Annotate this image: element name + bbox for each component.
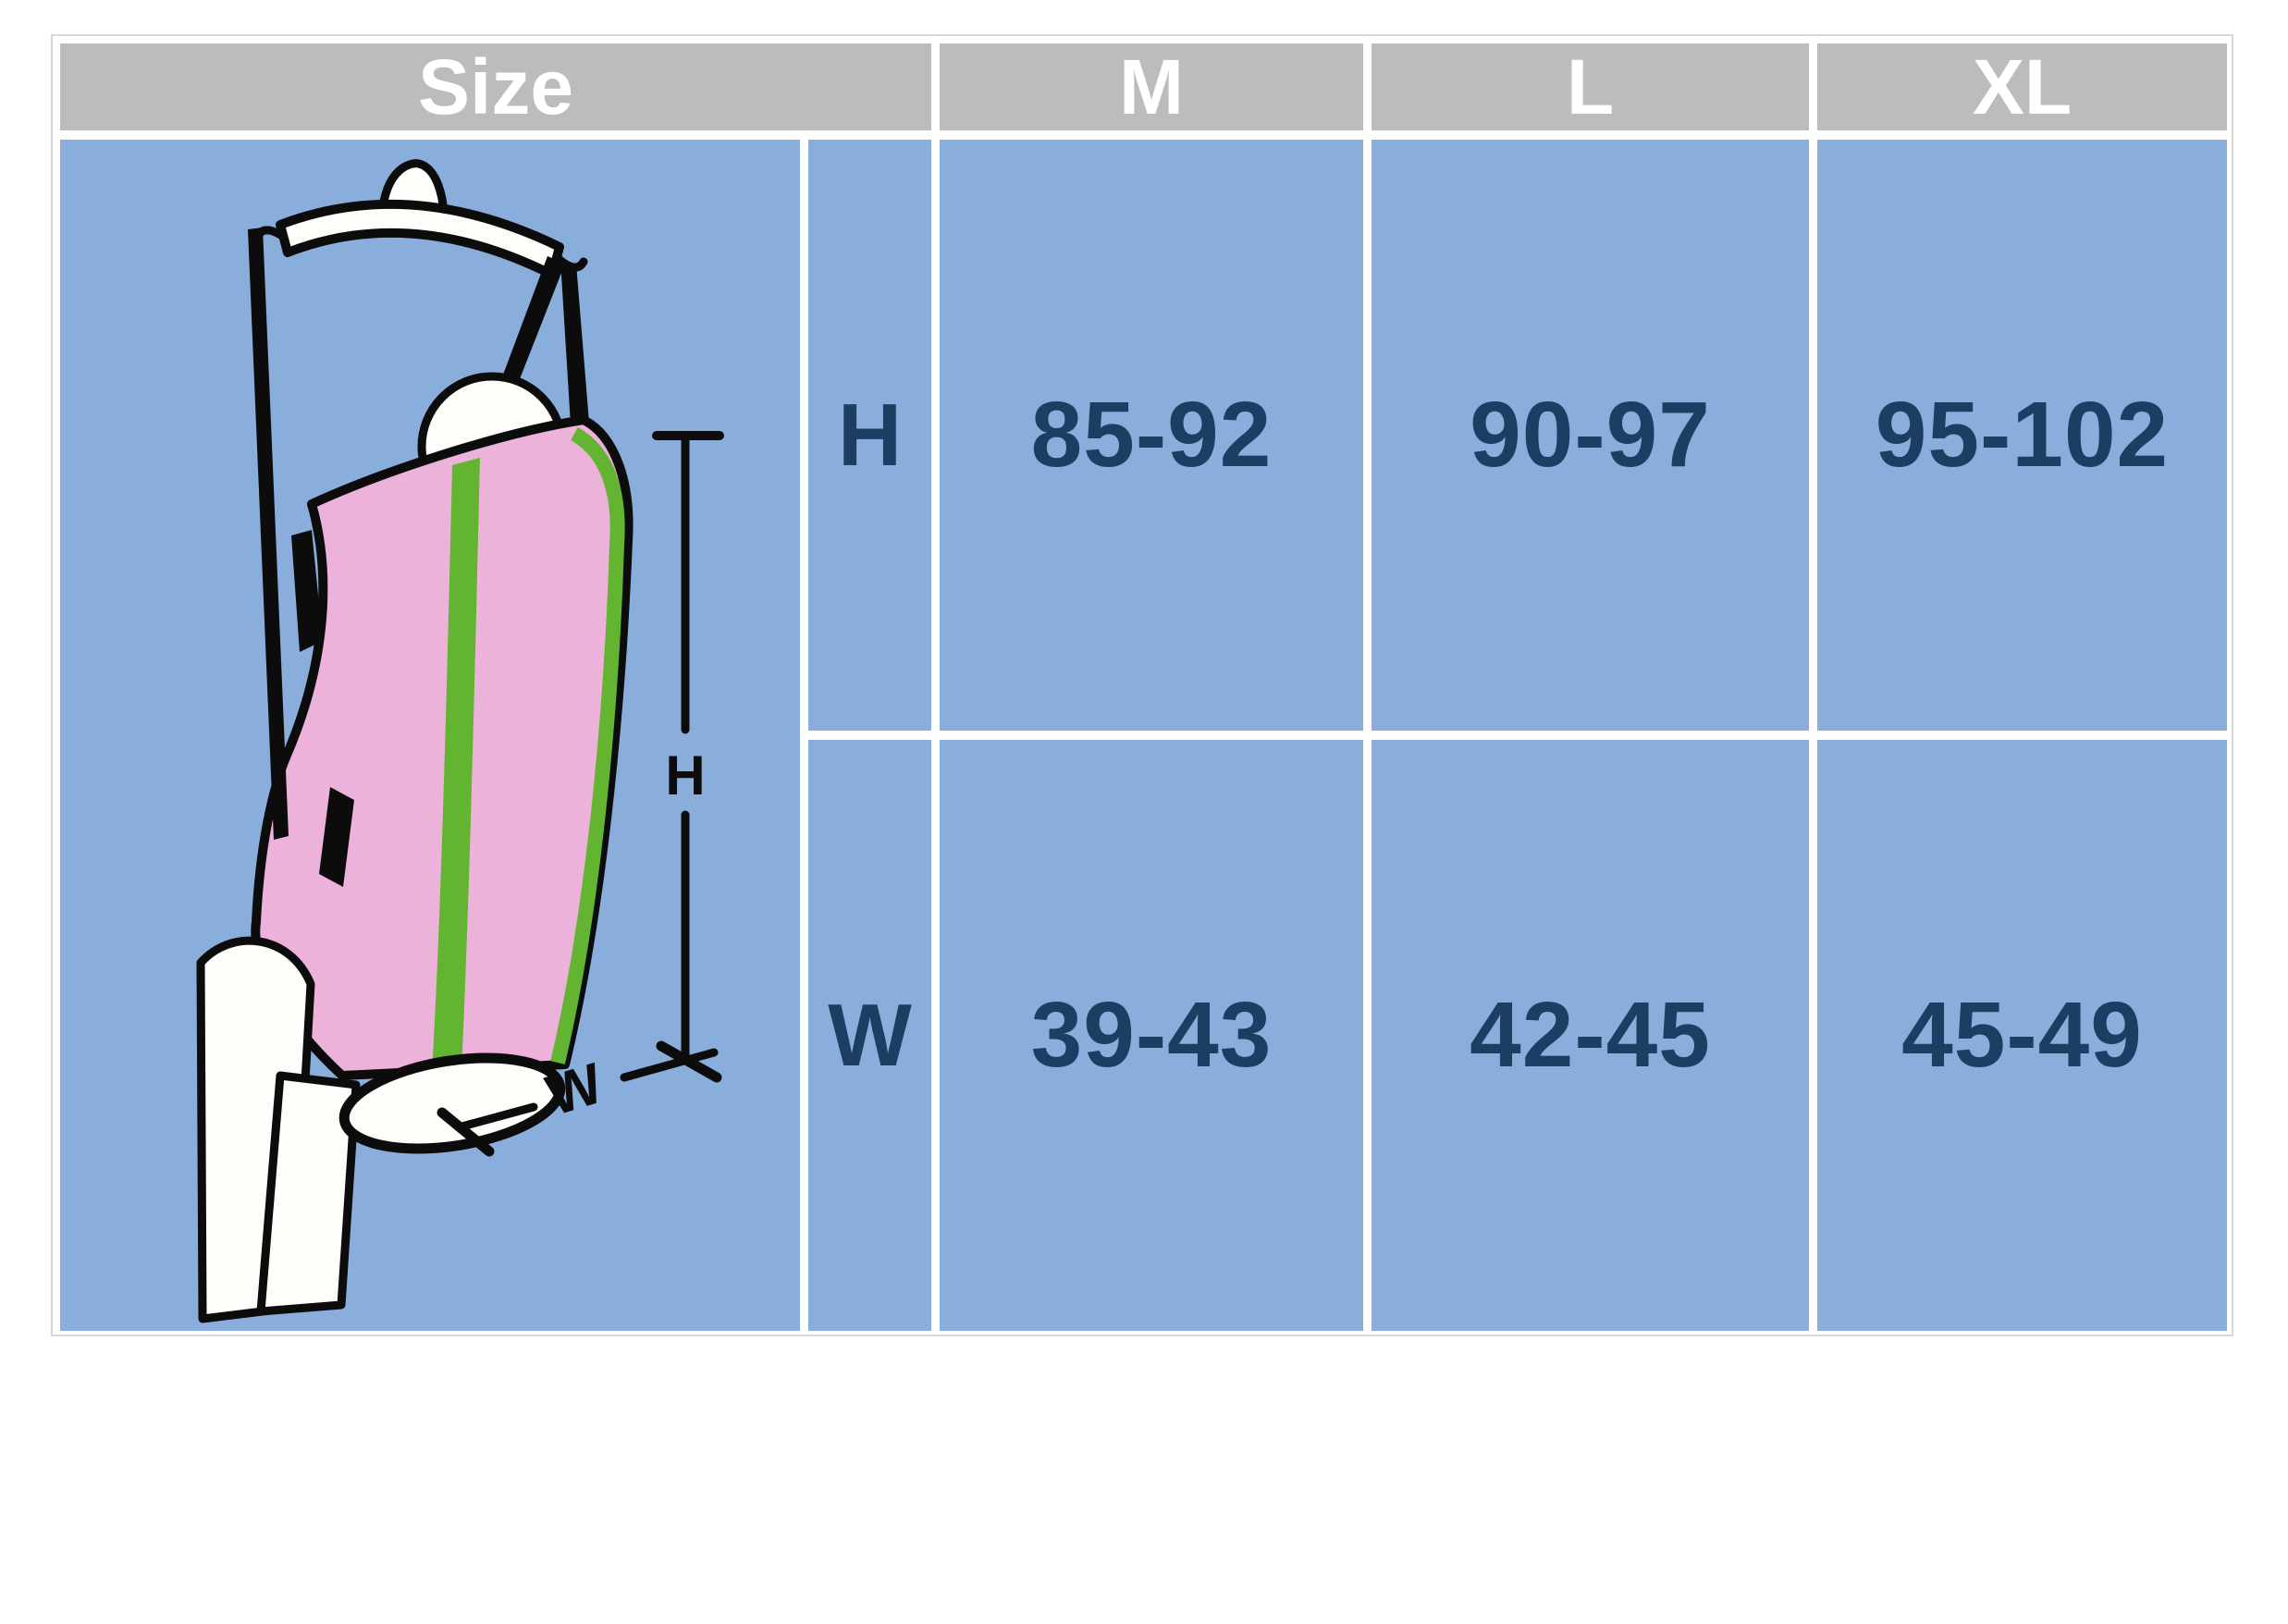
header-cell-size: Size	[60, 43, 931, 130]
value-cell-w-xl: 45-49	[1817, 740, 2227, 1331]
row-label-h: H	[808, 140, 931, 731]
w-label-text: W	[828, 985, 912, 1087]
column-label-m: M	[1119, 43, 1184, 130]
w-xl-value: 45-49	[1901, 982, 2143, 1089]
w-l-value: 42-45	[1470, 982, 1711, 1089]
h-m-value: 85-92	[1031, 382, 1273, 488]
shoulder-strap-left	[248, 228, 289, 840]
value-cell-w-m: 39-43	[940, 740, 1363, 1331]
row-label-w: W	[808, 740, 931, 1331]
h-dimension-label: H	[665, 744, 705, 806]
strap-right-back	[560, 260, 589, 424]
value-cell-h-m: 85-92	[940, 140, 1363, 731]
sling-illustration-cell: H W	[60, 140, 800, 1331]
size-chart-page: Size M L XL	[0, 0, 2288, 1624]
column-label-l: L	[1567, 43, 1614, 130]
h-label-text: H	[838, 385, 902, 486]
w-m-value: 39-43	[1031, 982, 1273, 1089]
sling-illustration: H W	[60, 140, 800, 1331]
column-label-xl: XL	[1973, 43, 2072, 130]
header-cell-l: L	[1372, 43, 1809, 130]
header-cell-m: M	[940, 43, 1363, 130]
size-chart-table: Size M L XL	[60, 43, 2227, 1331]
value-cell-w-l: 42-45	[1372, 740, 1809, 1331]
value-cell-h-l: 90-97	[1372, 140, 1809, 731]
size-title: Size	[418, 43, 573, 130]
h-l-value: 90-97	[1470, 382, 1711, 488]
h-xl-value: 95-102	[1876, 382, 2169, 488]
hanger-bar	[280, 204, 560, 275]
value-cell-h-xl: 95-102	[1817, 140, 2227, 731]
header-cell-xl: XL	[1817, 43, 2227, 130]
